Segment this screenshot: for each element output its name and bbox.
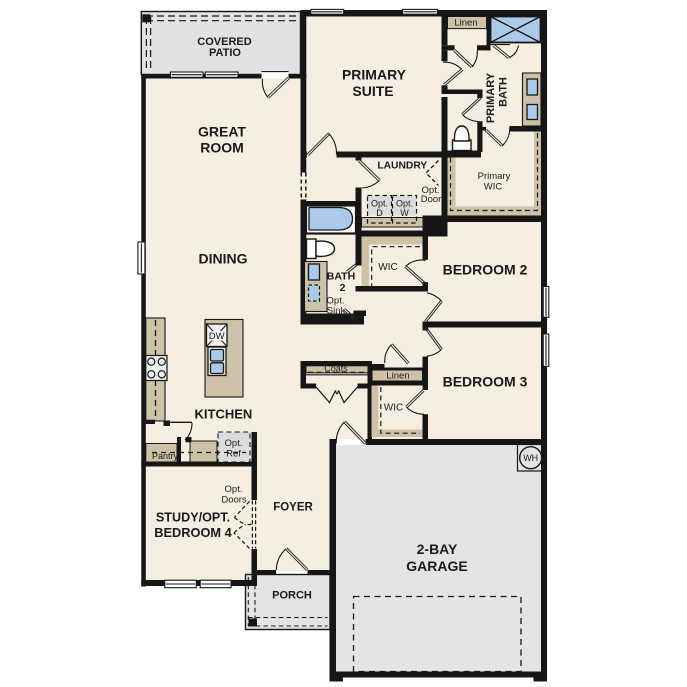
svg-text:COVERED: COVERED bbox=[197, 36, 251, 48]
svg-text:BEDROOM 2: BEDROOM 2 bbox=[443, 262, 528, 278]
svg-text:Opt.: Opt. bbox=[225, 438, 243, 449]
svg-text:Opt.: Opt. bbox=[371, 199, 388, 209]
svg-text:LAUNDRY: LAUNDRY bbox=[377, 160, 427, 171]
svg-text:PRIMARY: PRIMARY bbox=[485, 72, 497, 123]
svg-text:D: D bbox=[376, 208, 383, 218]
svg-text:PATIO: PATIO bbox=[209, 47, 241, 59]
svg-text:WIC: WIC bbox=[484, 182, 503, 193]
svg-text:ROOM: ROOM bbox=[200, 140, 244, 156]
svg-text:BEDROOM 4: BEDROOM 4 bbox=[154, 525, 232, 540]
svg-text:Linen: Linen bbox=[386, 371, 409, 382]
svg-text:SUITE: SUITE bbox=[352, 83, 393, 99]
svg-text:GARAGE: GARAGE bbox=[406, 558, 467, 574]
svg-text:KITCHEN: KITCHEN bbox=[195, 407, 253, 422]
svg-text:BATH: BATH bbox=[327, 271, 355, 283]
svg-text:DW: DW bbox=[209, 331, 225, 342]
svg-text:Doors: Doors bbox=[221, 494, 247, 505]
svg-text:FOYER: FOYER bbox=[273, 502, 313, 514]
svg-text:DINING: DINING bbox=[199, 251, 248, 267]
svg-text:Opt.: Opt. bbox=[396, 199, 413, 209]
svg-text:BEDROOM 3: BEDROOM 3 bbox=[443, 374, 528, 390]
svg-text:2-BAY: 2-BAY bbox=[417, 541, 458, 557]
svg-text:BATH: BATH bbox=[498, 77, 510, 107]
svg-text:Sink: Sink bbox=[327, 306, 346, 317]
svg-text:PORCH: PORCH bbox=[272, 589, 312, 601]
svg-text:WIC: WIC bbox=[384, 403, 403, 414]
svg-text:2: 2 bbox=[340, 282, 346, 294]
svg-text:Ref: Ref bbox=[226, 449, 241, 460]
svg-text:Coats: Coats bbox=[324, 364, 348, 374]
svg-text:STUDY/OPT.: STUDY/OPT. bbox=[156, 510, 230, 524]
svg-text:Door: Door bbox=[421, 194, 442, 205]
svg-text:WH: WH bbox=[523, 453, 538, 463]
svg-text:GREAT: GREAT bbox=[198, 124, 246, 140]
svg-text:Linen: Linen bbox=[454, 18, 477, 29]
svg-text:WIC: WIC bbox=[378, 262, 397, 273]
svg-text:Primary: Primary bbox=[478, 171, 511, 182]
svg-text:PRIMARY: PRIMARY bbox=[342, 67, 407, 83]
svg-text:W: W bbox=[400, 208, 409, 218]
